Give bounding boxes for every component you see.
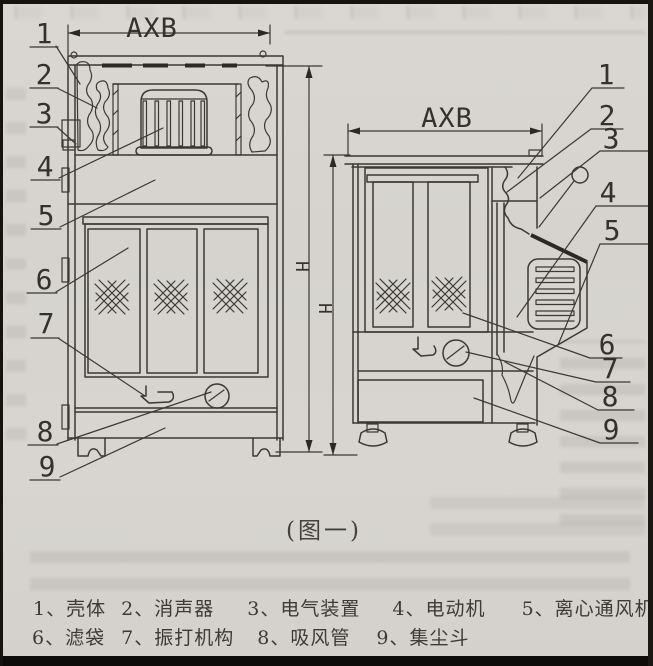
front-height-dimension: H <box>266 66 322 452</box>
figure-caption: (图一) <box>286 511 362 545</box>
scanned-page: AXB H <box>0 0 653 666</box>
side-height-dimension: H <box>314 155 357 455</box>
front-callout-6: 6 <box>36 263 53 296</box>
legend-item-9: 9、集尘斗 <box>376 623 469 650</box>
side-callout-5: 5 <box>604 214 621 247</box>
side-callout-4: 4 <box>600 176 617 209</box>
scan-border-bottom <box>0 656 653 666</box>
front-rapping-mechanism <box>141 386 173 403</box>
side-width-dimension: AXB <box>348 103 542 154</box>
front-feet <box>78 438 280 456</box>
front-callout-leaders <box>27 46 211 480</box>
side-filter-bags <box>367 175 478 327</box>
side-motor <box>528 259 580 329</box>
technical-figure: AXB H <box>0 0 653 585</box>
front-callout-5: 5 <box>38 199 55 232</box>
front-shell <box>68 51 283 440</box>
side-callout-8: 8 <box>602 380 619 413</box>
front-callout-3: 3 <box>36 97 53 130</box>
front-filter-bag-doors <box>83 217 268 377</box>
front-width-dimension: AXB <box>68 13 270 55</box>
parts-legend-row-2: 6、滤袋 7、振打机构 8、吸风管 9、集尘斗 <box>0 623 653 650</box>
front-view: AXB H <box>27 13 322 483</box>
front-width-dim-label: AXB <box>126 13 178 44</box>
legend-item-4: 4、电动机 <box>392 594 485 621</box>
scan-border-right <box>648 0 653 666</box>
legend-item-5: 5、离心通风机 <box>522 594 653 621</box>
front-motor <box>136 90 212 155</box>
front-callout-9: 9 <box>39 450 56 483</box>
side-dust-hopper <box>353 371 535 423</box>
front-callout-8: 8 <box>37 415 54 448</box>
front-inner-posts <box>113 84 241 155</box>
front-callout-2: 2 <box>36 58 53 91</box>
legend-item-7: 7、振打机构 <box>121 623 234 650</box>
legend-item-2: 2、消声器 <box>121 594 214 621</box>
side-rapping-mechanism <box>413 337 436 356</box>
front-knob <box>205 384 229 408</box>
front-callout-7: 7 <box>38 307 55 340</box>
parts-legend-row-1: 1、壳体 2、消声器 3、电气装置 4、电动机 5、离心通风机 <box>0 594 653 621</box>
side-knob <box>443 340 469 366</box>
legend-item-8: 8、吸风管 <box>257 623 350 650</box>
side-view: AXB H <box>314 58 652 455</box>
front-muffler <box>77 62 271 152</box>
legend-item-3: 3、电气装置 <box>247 594 360 621</box>
scan-border-top <box>0 0 653 4</box>
side-callout-3: 3 <box>603 122 620 155</box>
legend-item-6: 6、滤袋 <box>32 623 105 650</box>
legend-item-1: 1、壳体 <box>33 594 106 621</box>
side-height-dim-label: H <box>314 303 335 314</box>
side-castors <box>359 424 537 446</box>
front-callout-1: 1 <box>36 17 53 50</box>
side-callout-9: 9 <box>603 413 620 446</box>
side-width-dim-label: AXB <box>421 103 473 134</box>
side-callout-1: 1 <box>598 58 615 91</box>
front-dust-hopper <box>68 408 283 438</box>
front-callout-4: 4 <box>37 150 54 183</box>
scan-border-left <box>0 0 3 666</box>
front-height-dim-label: H <box>291 261 312 272</box>
